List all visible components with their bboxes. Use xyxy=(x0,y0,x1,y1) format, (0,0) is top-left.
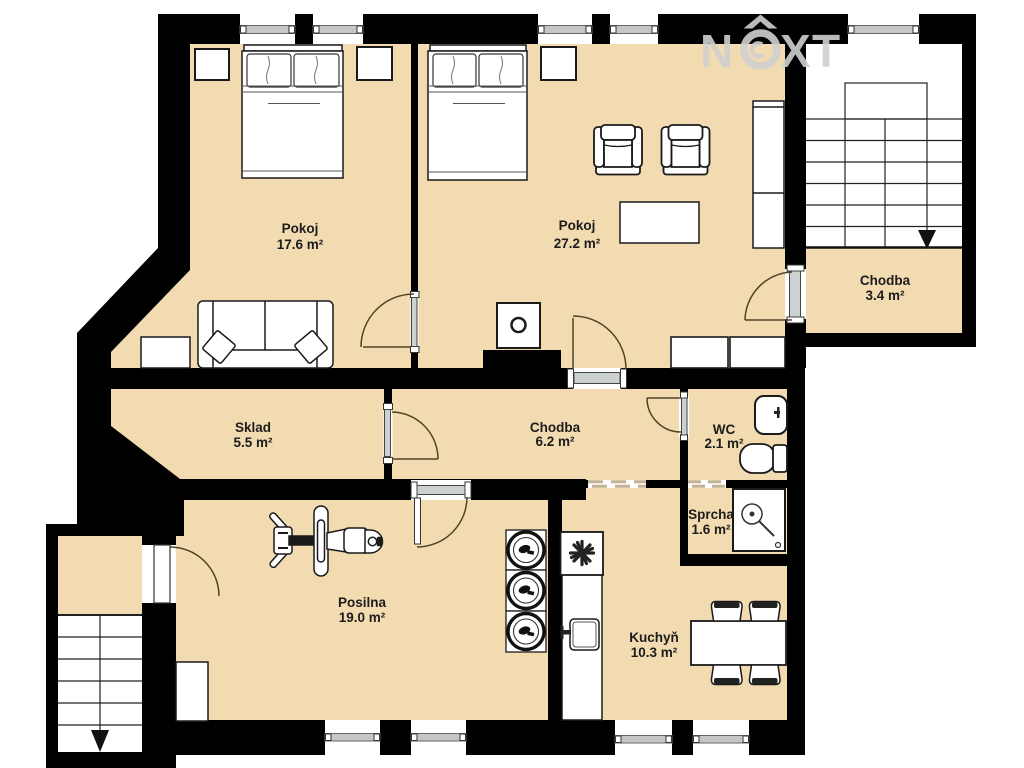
svg-text:Chodba: Chodba xyxy=(860,273,911,288)
svg-text:2.1 m²: 2.1 m² xyxy=(704,436,744,451)
svg-text:Chodba: Chodba xyxy=(530,420,581,435)
svg-text:Sprcha: Sprcha xyxy=(688,507,734,522)
svg-text:6.2 m²: 6.2 m² xyxy=(535,434,575,449)
svg-text:T: T xyxy=(812,25,840,77)
svg-text:3.4 m²: 3.4 m² xyxy=(865,288,905,303)
svg-text:X: X xyxy=(780,25,811,77)
svg-text:19.0 m²: 19.0 m² xyxy=(339,610,386,625)
svg-text:17.6 m²: 17.6 m² xyxy=(277,237,324,252)
svg-text:Sklad: Sklad xyxy=(235,420,271,435)
svg-text:Pokoj: Pokoj xyxy=(282,221,319,236)
svg-text:5.5 m²: 5.5 m² xyxy=(233,435,273,450)
svg-text:Pokoj: Pokoj xyxy=(559,218,596,233)
svg-text:1.6 m²: 1.6 m² xyxy=(691,522,731,537)
svg-text:27.2 m²: 27.2 m² xyxy=(554,236,601,251)
svg-text:Kuchyň: Kuchyň xyxy=(629,630,679,645)
svg-text:WC: WC xyxy=(713,422,736,437)
svg-text:N: N xyxy=(700,25,733,77)
svg-text:10.3 m²: 10.3 m² xyxy=(631,645,678,660)
svg-text:Posilna: Posilna xyxy=(338,595,387,610)
